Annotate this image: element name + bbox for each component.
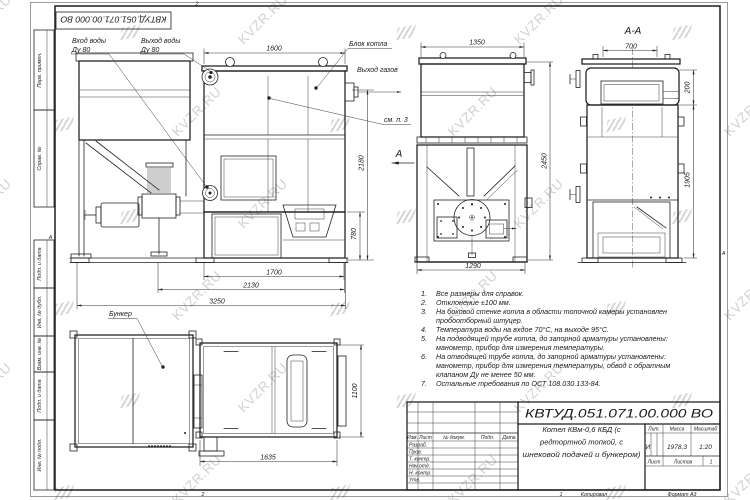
col-list: Лист xyxy=(418,435,432,441)
col-doc: № докум. xyxy=(443,435,465,441)
top-stamp-number: КВТУД.051.071.00.000 ВО xyxy=(60,15,166,25)
product-name-3: шнековой подачей и бункером) xyxy=(523,450,641,459)
margin-label: Справ. № xyxy=(37,146,43,170)
scale-value: 1:20 xyxy=(699,444,712,451)
note-num: 5. xyxy=(421,334,427,343)
mass-label: Масса xyxy=(670,427,685,433)
main-view: Вход воды Ду 80 Выход воды Ду 80 Блок ко… xyxy=(70,37,414,309)
ash-hopper xyxy=(283,205,336,237)
note-text: Все размеры для справок. xyxy=(436,289,524,298)
note-text: манометр, прибор для измерения температу… xyxy=(436,361,670,370)
top-stamp: КВТУД.051.071.00.000 ВО xyxy=(56,12,171,29)
plan-boiler xyxy=(200,343,337,437)
front-view: 1350 1290 2450 xyxy=(415,40,553,275)
margin-label: Инв. № подл. xyxy=(37,439,43,472)
dim-2450: 2450 xyxy=(542,153,549,170)
note-num: 4. xyxy=(421,325,427,334)
flue-stub xyxy=(345,83,354,101)
feeder-spring-cap xyxy=(146,163,173,167)
dim-780: 780 xyxy=(351,228,358,240)
notes: 1.Все размеры для справок.2.Отклонение ±… xyxy=(420,289,670,388)
margin-labels: Перв. примен.Справ. №Подп. и датаИнв. № … xyxy=(37,52,43,471)
section-top-plate xyxy=(582,59,680,64)
drawing-canvas: Перв. примен.Справ. №Подп. и датаИнв. № … xyxy=(0,0,750,500)
zone-bottom-left: 2 xyxy=(201,492,205,498)
bunker-body xyxy=(79,61,190,140)
note-num: 6. xyxy=(421,352,427,361)
plan-view: Бункер 1635 1100 xyxy=(70,311,364,466)
dim-2180: 2180 xyxy=(359,155,366,172)
scale-label: Масштаб xyxy=(694,427,718,433)
note-text: пробоотборный штуцер. xyxy=(436,316,523,325)
plan-flue-elbow xyxy=(204,437,217,451)
section-title: А-А xyxy=(624,26,642,37)
note-num: 3. xyxy=(421,307,427,316)
water-in-label2: Ду 80 xyxy=(71,47,90,54)
product-name-2: редтортной топкой, с xyxy=(539,438,623,447)
sheets-label: Листов xyxy=(673,460,693,466)
margin-label: Подп. и дата xyxy=(37,247,43,280)
margin-label: Подп. и дата xyxy=(37,379,43,412)
plan-hatch xyxy=(287,355,307,427)
note-text: На отводящей трубе котла, до запорной ар… xyxy=(436,352,666,361)
row-razrab: Разраб. xyxy=(409,442,427,448)
dim-2130: 2130 xyxy=(242,283,259,290)
front-panel xyxy=(434,200,509,241)
zone-letter-left: А xyxy=(48,235,53,241)
boiler-top-plate xyxy=(202,66,347,71)
note-text: Отклонение ±100 мм. xyxy=(436,298,511,307)
copied-label: Копировал xyxy=(581,492,607,498)
margin-label: Перв. примен. xyxy=(37,52,43,87)
row-tkontr: Т. контр. xyxy=(409,456,431,462)
bolt-band xyxy=(417,137,527,143)
gas-out-label: Выход газов xyxy=(357,66,398,74)
section-view: А-А xyxy=(570,26,697,268)
dim-700: 700 xyxy=(625,44,637,51)
dim-1600: 1600 xyxy=(266,46,282,53)
note-num: 7. xyxy=(421,379,427,388)
margin-label: Инв. № дубл. xyxy=(37,296,43,329)
product-name-1: Котел КВм-0,6 КБД (с xyxy=(542,425,621,434)
plan-bunker xyxy=(75,335,193,447)
note-text: Остальные требования по ОСТ 108.030.133-… xyxy=(436,379,601,388)
row-utv: Утв. xyxy=(409,477,420,483)
row-prov: Пров. xyxy=(409,449,422,455)
feeder-motor xyxy=(101,203,139,227)
note-text: На боковой стенке котла в области топочн… xyxy=(436,307,667,316)
col-podp: Подп. xyxy=(481,435,494,441)
dim-1350: 1350 xyxy=(469,40,485,47)
dim-1905: 1905 xyxy=(685,172,692,188)
front-upper-body xyxy=(421,64,524,137)
feed-duct xyxy=(467,148,474,196)
doc-number: КВТУД.051.071.00.000 ВО xyxy=(525,409,713,421)
note-text: клапаном Ду не менее 50 мм. xyxy=(436,370,536,379)
boiler-body xyxy=(204,71,345,212)
drawing-sheet: KVZR.RUKVZR.RUKVZR.RUKVZR.RUKVZR.RUKVZR.… xyxy=(0,0,750,500)
dim-1635: 1635 xyxy=(260,455,276,462)
mass-value: 1978,3 xyxy=(667,444,687,451)
dim-200: 200 xyxy=(685,82,692,95)
water-out-label: Выход воды xyxy=(141,37,181,45)
row-nkontr: Н. контр. xyxy=(409,470,432,476)
note-text: манометр, прибор для измерения температу… xyxy=(436,343,605,352)
feeder-spring xyxy=(148,168,170,193)
sheets-value: 1 xyxy=(710,460,713,466)
dim-3250: 3250 xyxy=(209,299,225,306)
dim-1700: 1700 xyxy=(266,270,282,277)
zone-top: 2 xyxy=(195,2,199,8)
plan-feeder xyxy=(194,375,202,428)
feeder-gearbox xyxy=(142,194,176,218)
dim-1290: 1290 xyxy=(465,263,481,270)
sheet-label: Лист xyxy=(647,460,661,466)
lit-value: И xyxy=(646,444,651,451)
bunker-label: Бункер xyxy=(109,311,132,318)
zone-bottom-right: 1 xyxy=(560,492,563,498)
view-direction-letter: А xyxy=(395,149,403,160)
col-data: Дата xyxy=(501,435,515,441)
row-nachotd: Нач.отд. xyxy=(409,463,430,469)
section-drum xyxy=(586,68,679,105)
dim-1100: 1100 xyxy=(352,383,359,398)
front-top-plate xyxy=(419,58,526,64)
boiler-block-label: Блок котла xyxy=(349,41,387,48)
note-text: На подводящей трубе котла, до запорной а… xyxy=(436,334,668,343)
water-out-label2: Ду 80 xyxy=(140,47,159,54)
lifting-lug xyxy=(319,58,328,67)
section-firebox xyxy=(593,202,670,258)
note-text: Температура воды на вхдое 70°С, на выход… xyxy=(436,325,609,334)
lit-label: Лит. xyxy=(647,427,660,433)
format-label: Формат А3 xyxy=(668,492,697,498)
see-note-label: см. п. 3 xyxy=(384,117,408,124)
zone-letter-right: А xyxy=(721,251,726,257)
water-in-label: Вход воды xyxy=(72,37,107,45)
col-izm: Изм. xyxy=(407,435,418,441)
margin-label: Взам. инв. № xyxy=(37,337,43,370)
note-num: 1. xyxy=(421,289,427,298)
lifting-lug xyxy=(226,58,235,67)
note-num: 2. xyxy=(420,298,427,307)
title-block: КВТУД.051.071.00.000 ВО Котел КВм-0,6 КБ… xyxy=(407,402,720,490)
